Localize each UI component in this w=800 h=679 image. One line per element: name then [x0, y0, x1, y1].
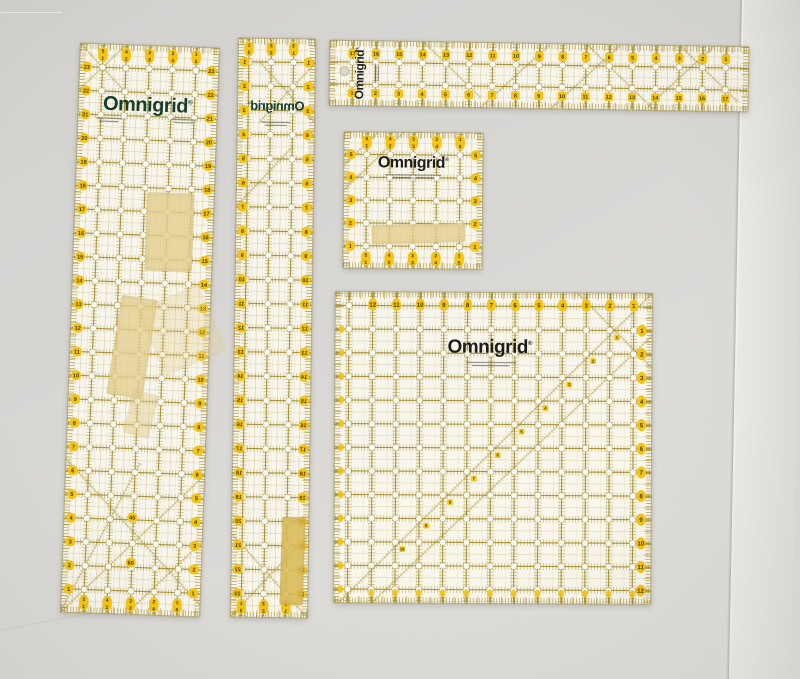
- inch-number: 2: [307, 85, 310, 91]
- inch-number: 2: [152, 599, 155, 605]
- inch-number: 14: [76, 278, 83, 284]
- inch-number: 17: [203, 211, 209, 217]
- inch-number: 4: [106, 598, 109, 604]
- masking-tape-piece: [279, 517, 305, 606]
- inch-number: 1: [82, 604, 85, 610]
- inch-number: 1: [364, 260, 367, 266]
- inch-number: 5: [640, 422, 644, 429]
- inch-number: 13: [75, 302, 81, 308]
- inch-number: 7: [72, 444, 75, 450]
- inch-number: 21: [206, 116, 212, 122]
- inch-number: 9: [74, 397, 77, 403]
- inch-number: 5: [631, 56, 634, 62]
- inch-number: 4: [435, 144, 438, 150]
- inch-number: 15: [301, 399, 307, 405]
- masking-tape-piece: [372, 223, 465, 244]
- inch-number: 6: [196, 473, 199, 479]
- inch-number: 23: [234, 591, 240, 597]
- inch-number: 4: [640, 399, 644, 406]
- inch-number: 10: [302, 278, 308, 284]
- inch-number: 1: [67, 587, 70, 593]
- ruler-3x18-horizontal: 1716151413121110987654321123456789101112…: [329, 40, 750, 113]
- inch-number: 1: [365, 143, 368, 149]
- inch-number: 4: [434, 260, 437, 266]
- omnigrid-logo-text: Omnigrid®: [352, 47, 367, 100]
- inch-number: 16: [373, 52, 379, 58]
- inch-number: 16: [237, 422, 243, 428]
- inch-number: 11: [302, 302, 308, 308]
- omnigrid-logo-text: Omnigrid®: [248, 98, 305, 114]
- inch-number: 12: [606, 95, 612, 101]
- inch-number: 20: [81, 136, 87, 142]
- photo-backdrop: 5142332415514233241523222120191817161514…: [0, 0, 800, 679]
- inch-number: 2: [105, 605, 108, 611]
- inch-number: 2: [435, 137, 438, 143]
- inch-number: 7: [639, 470, 643, 477]
- inch-number: 6: [513, 302, 517, 309]
- inch-number: 60: [127, 560, 133, 566]
- inch-number: 21: [82, 112, 88, 118]
- backdrop-edge-line: [0, 12, 62, 13]
- inch-number: 2: [701, 57, 704, 63]
- inch-number: 3: [306, 109, 309, 115]
- inch-number: 1: [349, 244, 352, 250]
- inch-number: 2: [262, 601, 265, 607]
- inch-number: 13: [629, 95, 635, 101]
- inch-number: 8: [305, 230, 308, 236]
- inch-number: 2: [434, 253, 437, 259]
- inch-number: 10: [637, 541, 644, 548]
- inch-number: 3: [585, 303, 589, 310]
- inch-number: 9: [537, 94, 540, 100]
- inch-number: 2: [192, 567, 195, 573]
- inch-number: 1: [191, 591, 194, 597]
- inch-number: 5: [102, 49, 105, 55]
- inch-number: 3: [411, 260, 414, 266]
- ruler-3x18-horizontal-artwork: 1716151413121110987654321123456789101112…: [329, 40, 750, 113]
- inch-number: 1: [243, 60, 246, 66]
- inch-number: 1: [632, 303, 636, 310]
- inch-number: 3: [193, 544, 196, 550]
- ruler-6x6-square: 514233241551423324155432154321Omnigrid®: [342, 131, 483, 269]
- inch-number: 6: [242, 181, 245, 187]
- inch-number: 17: [79, 207, 85, 213]
- inch-number: 5: [474, 153, 477, 159]
- inch-number: 1: [640, 328, 644, 335]
- inch-number: 8: [561, 54, 564, 60]
- inch-number: 6: [467, 93, 470, 99]
- inch-number: 5: [364, 253, 367, 259]
- omnigrid-logo: Omnigrid®: [447, 337, 533, 358]
- inch-number: 18: [79, 183, 85, 189]
- inch-number: 2: [640, 351, 644, 358]
- inch-number: 3: [640, 375, 644, 382]
- inch-number: 13: [238, 350, 244, 356]
- ruler-6x6-square-artwork: 514233241551423324155432154321Omnigrid®: [342, 131, 483, 269]
- inch-number: 12: [637, 588, 644, 595]
- inch-number: 16: [78, 231, 84, 237]
- inch-number: 8: [514, 93, 517, 99]
- inch-number: 3: [474, 199, 477, 205]
- inch-number: 1: [307, 61, 310, 67]
- inch-number: 1: [458, 253, 461, 259]
- omnigrid-logo-text: Omnigrid®: [378, 154, 449, 172]
- inch-number: 1: [284, 609, 287, 615]
- inch-number: 1: [195, 52, 198, 58]
- inch-number: 9: [304, 254, 307, 260]
- inch-number: 23: [208, 69, 214, 75]
- inch-number: 9: [241, 253, 244, 259]
- inch-number: 12: [369, 302, 376, 309]
- inch-number: 7: [305, 206, 308, 212]
- inch-number: 10: [197, 378, 203, 384]
- inch-number: 20: [206, 140, 212, 146]
- inch-number: 3: [148, 57, 151, 63]
- inch-number: 15: [77, 255, 83, 261]
- inch-number: 2: [374, 91, 377, 97]
- inch-number: 2: [125, 57, 128, 63]
- inch-number: 4: [420, 92, 423, 98]
- inch-number: 11: [637, 564, 644, 571]
- inch-number: 3: [240, 608, 243, 614]
- inch-number: 5: [458, 261, 461, 267]
- omnigrid-logo: Omnigrid®: [103, 93, 194, 118]
- inch-number: 15: [201, 259, 207, 265]
- inch-number: 20: [235, 519, 241, 525]
- inch-number: 17: [300, 447, 306, 453]
- inch-number: 3: [412, 144, 415, 150]
- inch-number: 17: [236, 446, 242, 452]
- inch-number: 3: [129, 598, 132, 604]
- inch-number: 2: [68, 563, 71, 569]
- inch-number: 16: [300, 423, 306, 429]
- inch-number: 9: [198, 401, 201, 407]
- inch-number: 14: [201, 283, 208, 289]
- inch-number: 1: [292, 51, 295, 57]
- inch-number: 1: [724, 57, 727, 63]
- inch-number: 8: [241, 229, 244, 235]
- inch-number: 1: [247, 43, 250, 49]
- inch-number: 3: [349, 198, 352, 204]
- inch-number: 13: [443, 53, 449, 59]
- omnigrid-logo-text: Omnigrid®: [447, 337, 533, 358]
- inch-number: 10: [400, 547, 405, 552]
- ruler-12.5x12.5-square-artwork: 1211109876543211234567891011121234567891…: [333, 291, 653, 605]
- inch-number: 5: [537, 302, 541, 309]
- inch-number: 7: [490, 93, 493, 99]
- omnigrid-logo: Omnigrid®: [352, 47, 367, 100]
- inch-number: 6: [305, 181, 308, 187]
- inch-number: 14: [420, 52, 426, 58]
- inch-number: 10: [513, 54, 519, 60]
- inch-number: 4: [388, 253, 391, 259]
- inch-number: 3: [247, 50, 250, 56]
- inch-number: 8: [197, 425, 200, 431]
- inch-number: 22: [235, 567, 241, 573]
- inch-number: 8: [73, 421, 76, 427]
- inch-number: 22: [207, 93, 213, 99]
- inch-number: 5: [195, 59, 198, 65]
- inch-number: 14: [236, 374, 243, 380]
- inch-number: 2: [270, 50, 273, 56]
- inch-number: 10: [559, 94, 565, 100]
- inch-number: 4: [152, 606, 155, 612]
- inch-number: 1: [473, 245, 476, 251]
- inch-number: 8: [466, 302, 470, 309]
- inch-number: 5: [459, 144, 462, 150]
- inch-number: 19: [236, 495, 242, 501]
- inch-number: 5: [350, 152, 353, 158]
- inch-number: 4: [125, 49, 128, 55]
- inch-number: 2: [608, 303, 612, 310]
- inch-number: 3: [148, 50, 151, 56]
- inch-number: 11: [74, 349, 80, 355]
- inch-number: 16: [699, 96, 705, 102]
- inch-number: 7: [241, 205, 244, 211]
- inch-number: 5: [365, 136, 368, 142]
- inch-number: 6: [640, 446, 644, 453]
- inch-number: 8: [639, 493, 643, 500]
- inch-number: 1: [459, 137, 462, 143]
- inch-number: 23: [84, 65, 90, 71]
- inch-number: 19: [299, 496, 305, 502]
- inch-number: 14: [300, 375, 307, 381]
- inch-number: 3: [412, 137, 415, 143]
- inch-number: 9: [442, 302, 446, 309]
- inch-number: 14: [652, 96, 658, 102]
- inch-number: 3: [411, 253, 414, 259]
- omnigrid-logo: Omnigrid®: [378, 154, 449, 172]
- inch-number: 3: [678, 56, 681, 62]
- inch-number: 4: [561, 303, 565, 310]
- inch-number: 2: [262, 609, 265, 615]
- ruler-12.5x12.5-square: 1211109876543211234567891011121234567891…: [333, 291, 653, 605]
- inch-number: 5: [306, 157, 309, 163]
- inch-number: 5: [444, 92, 447, 98]
- inch-number: 12: [466, 53, 472, 59]
- inch-number: 13: [301, 351, 307, 357]
- omnigrid-logo: Omnigrid®: [248, 98, 305, 114]
- inch-number: 4: [654, 56, 657, 62]
- inch-number: 11: [393, 302, 400, 309]
- inch-number: 3: [69, 539, 72, 545]
- inch-number: 11: [582, 94, 588, 100]
- inch-number: 4: [389, 136, 392, 142]
- inch-number: 5: [242, 156, 245, 162]
- inch-number: 22: [83, 88, 89, 94]
- inch-number: 3: [129, 606, 132, 612]
- inch-number: 6: [608, 55, 611, 61]
- inch-number: 10: [73, 373, 79, 379]
- inch-number: 21: [235, 543, 241, 549]
- inch-number: 11: [238, 301, 244, 307]
- inch-number: 12: [302, 326, 308, 332]
- inch-number: 18: [204, 188, 210, 194]
- inch-number: 19: [80, 160, 86, 166]
- inch-number: 2: [172, 51, 175, 57]
- inch-number: 15: [676, 96, 682, 102]
- inch-number: 12: [74, 326, 80, 332]
- inch-number: 16: [202, 235, 208, 241]
- inch-number: 2: [243, 84, 246, 90]
- inch-number: 3: [397, 92, 400, 98]
- inch-number: 15: [237, 398, 243, 404]
- inch-number: 7: [196, 449, 199, 455]
- inch-number: 10: [417, 302, 424, 309]
- inch-number: 3: [243, 108, 246, 114]
- inch-number: 5: [82, 597, 85, 603]
- inch-number: 12: [238, 326, 244, 332]
- inch-number: 5: [70, 492, 73, 498]
- inch-number: 18: [236, 471, 242, 477]
- inch-number: 9: [639, 517, 643, 524]
- inch-number: 2: [270, 43, 273, 49]
- inch-number: 3: [292, 43, 295, 49]
- inch-number: 5: [175, 607, 178, 613]
- inch-number: 10: [239, 277, 245, 283]
- inch-number: 7: [584, 55, 587, 61]
- masking-tape-piece: [145, 192, 195, 272]
- inch-number: 18: [300, 471, 306, 477]
- inch-number: 2: [389, 144, 392, 150]
- inch-number: 2: [388, 260, 391, 266]
- inch-number: 7: [490, 302, 494, 309]
- inch-number: 11: [490, 53, 496, 59]
- inch-number: 9: [538, 54, 541, 60]
- inch-number: 5: [195, 496, 198, 502]
- inch-number: 1: [240, 601, 243, 607]
- inch-number: 1: [101, 56, 104, 62]
- inch-number: 1: [176, 600, 179, 606]
- inch-number: 4: [171, 58, 174, 64]
- inch-number: 6: [71, 468, 74, 474]
- inch-number: 2: [349, 221, 352, 227]
- omnigrid-logo-text: Omnigrid®: [103, 93, 194, 118]
- inch-number: 17: [722, 97, 728, 103]
- inch-number: 19: [205, 164, 211, 170]
- inch-number: 2: [474, 222, 477, 228]
- inch-number: 15: [396, 52, 402, 58]
- inch-number: 45: [129, 515, 135, 521]
